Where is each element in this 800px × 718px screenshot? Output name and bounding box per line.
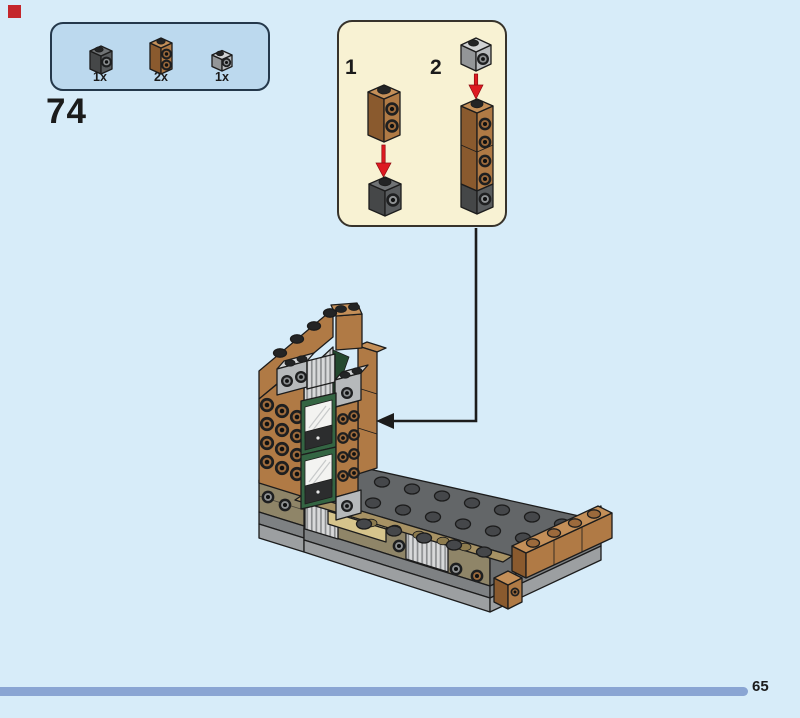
page-number: 65 [752, 679, 792, 694]
step-number: 74 [46, 94, 87, 129]
red-marker [8, 5, 21, 18]
plate-studs [357, 477, 570, 557]
part-count: 1x [205, 71, 239, 84]
gray-side-stud-brick-right [335, 365, 368, 407]
window-lower [301, 447, 336, 509]
gray-side-stud-brick-left [277, 353, 314, 395]
brown-end-bricks [494, 506, 612, 609]
progress-bar [0, 687, 748, 696]
part-count: 2x [144, 71, 178, 84]
lego-model [259, 303, 612, 612]
callout-arrow [376, 228, 476, 429]
substep-panel [337, 20, 507, 227]
substep-2-label: 2 [430, 57, 442, 78]
window-upper [301, 393, 336, 455]
placed-brick-column [358, 342, 386, 474]
part-count: 1x [83, 71, 117, 84]
substep-1-label: 1 [345, 57, 357, 78]
